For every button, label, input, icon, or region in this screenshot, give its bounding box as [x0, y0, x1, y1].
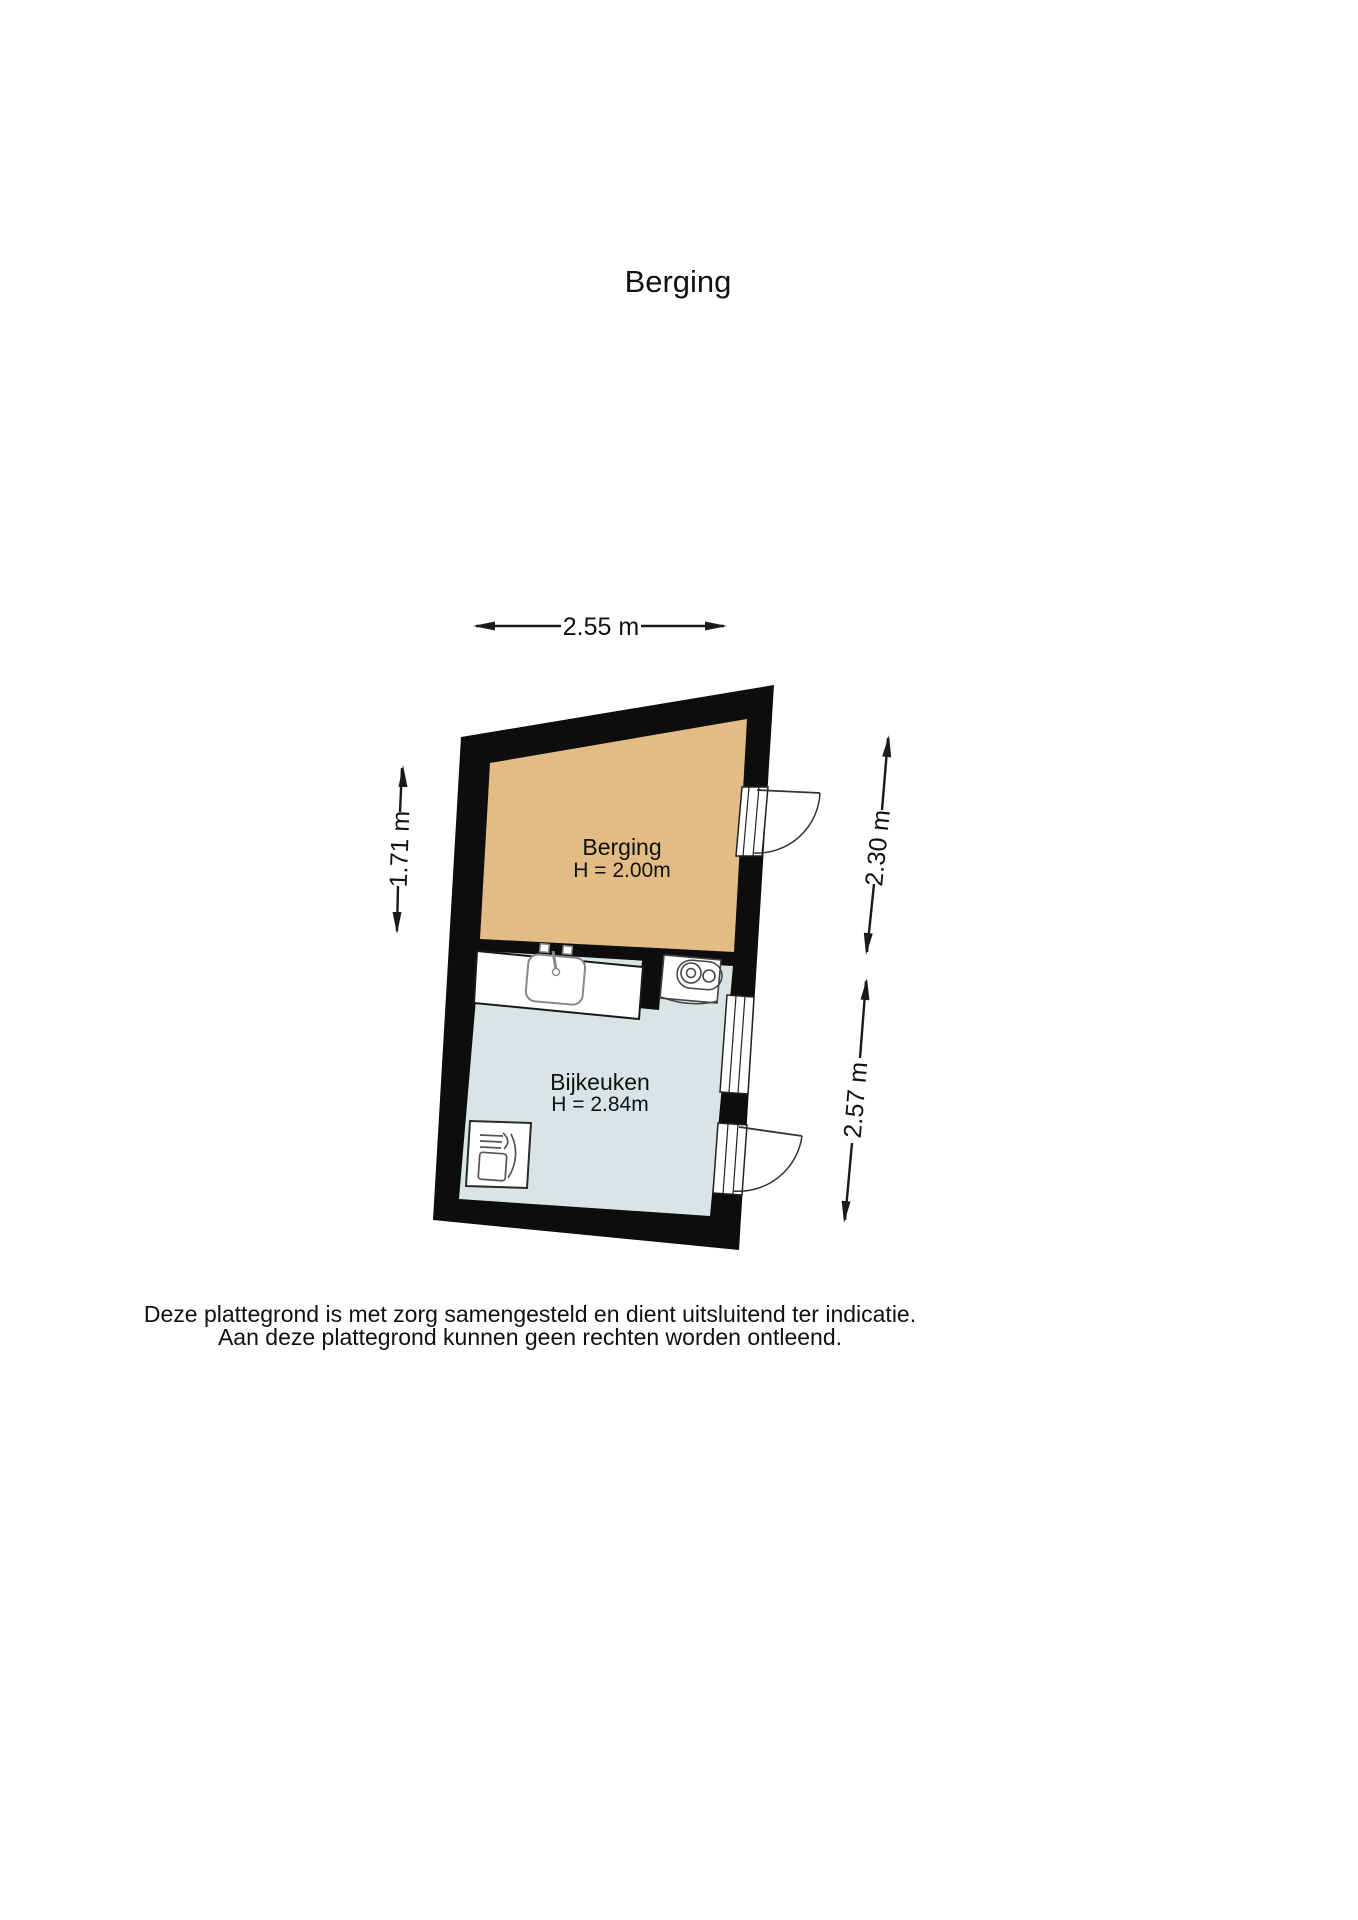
dimension-right-lower-label: 2.57 m [839, 1061, 874, 1140]
boiler-icon [660, 955, 723, 1004]
dimension-left-label: 1.71 m [385, 810, 416, 887]
arrowhead-right-icon [705, 622, 727, 631]
door-upper-icon [736, 787, 820, 856]
floorplan-canvas: Berging [0, 0, 1358, 1920]
arrowhead-down-icon [864, 933, 873, 955]
dimension-right-upper: 2.30 m [860, 735, 896, 955]
room-label-berging: Berging [582, 834, 661, 860]
dimension-left: 1.71 m [385, 765, 416, 934]
dimension-right-upper-label: 2.30 m [860, 809, 896, 888]
arrowhead-down-icon [393, 912, 402, 934]
dimension-right-lower: 2.57 m [839, 978, 874, 1223]
room-label-bijkeuken: Bijkeuken [550, 1069, 650, 1095]
dishwasher-icon [466, 1121, 531, 1188]
dimension-top: 2.55 m [473, 613, 727, 641]
door-lower-icon [713, 1123, 802, 1195]
room-height-berging: H = 2.00m [573, 859, 670, 882]
floorplan-page: Berging [0, 0, 1358, 1920]
arrowhead-left-icon [473, 622, 495, 631]
footer-disclaimer-line2: Aan deze plattegrond kunnen geen rechten… [218, 1324, 842, 1350]
page-title: Berging [625, 264, 732, 299]
arrowhead-up-icon [882, 735, 891, 757]
dimension-top-label: 2.55 m [563, 613, 639, 641]
room-height-bijkeuken: H = 2.84m [551, 1093, 648, 1116]
arrowhead-up-icon [399, 765, 408, 787]
